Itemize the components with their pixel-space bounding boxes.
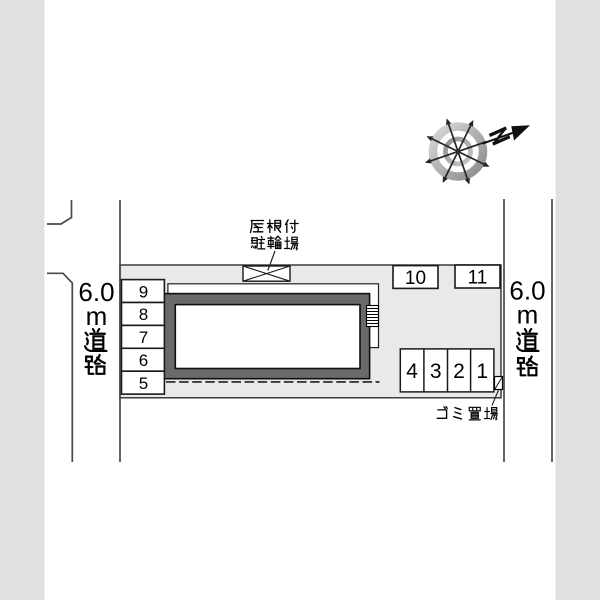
svg-text:8: 8 (139, 305, 148, 324)
svg-text:4: 4 (406, 360, 418, 383)
svg-text:11: 11 (468, 268, 488, 289)
svg-text:10: 10 (405, 268, 426, 289)
svg-text:7: 7 (139, 328, 148, 347)
svg-text:2: 2 (453, 360, 465, 383)
svg-text:m: m (86, 301, 108, 331)
svg-text:5: 5 (139, 374, 148, 393)
svg-text:6: 6 (139, 351, 148, 370)
svg-text:m: m (517, 299, 539, 329)
svg-text:3: 3 (430, 360, 442, 383)
svg-text:1: 1 (476, 360, 488, 383)
svg-text:9: 9 (139, 282, 148, 301)
